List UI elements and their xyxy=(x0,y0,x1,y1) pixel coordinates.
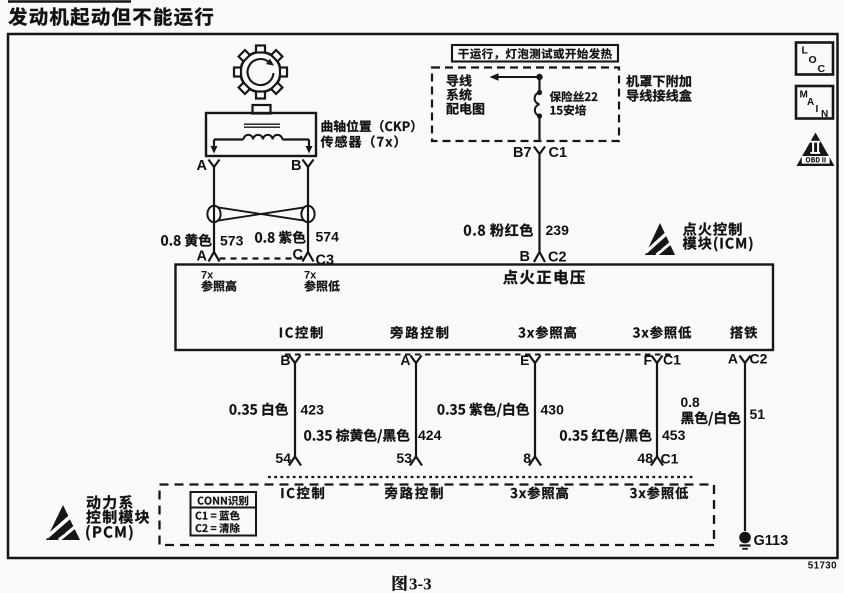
svg-text:574: 574 xyxy=(316,229,340,245)
svg-text:423: 423 xyxy=(301,402,325,418)
svg-text:B: B xyxy=(280,352,290,368)
svg-text:I: I xyxy=(816,104,819,115)
svg-text:C: C xyxy=(818,63,826,75)
svg-text:N: N xyxy=(821,109,828,120)
svg-text:A: A xyxy=(197,158,208,174)
svg-text:A: A xyxy=(400,352,410,368)
svg-text:A: A xyxy=(807,97,814,108)
svg-text:F: F xyxy=(643,352,652,368)
svg-text:C3: C3 xyxy=(316,253,335,269)
svg-text:O: O xyxy=(809,54,817,66)
svg-text:7x: 7x xyxy=(304,270,317,282)
svg-text:B7: B7 xyxy=(513,145,532,161)
svg-text:C1: C1 xyxy=(663,352,681,368)
svg-text:B: B xyxy=(291,158,301,174)
svg-text:3-3: 3-3 xyxy=(409,575,432,593)
svg-text:C1: C1 xyxy=(661,451,679,467)
svg-text:453: 453 xyxy=(662,427,686,443)
svg-text:C2: C2 xyxy=(548,250,567,266)
svg-text:C1: C1 xyxy=(549,145,568,161)
svg-text:573: 573 xyxy=(220,233,244,249)
svg-text:A: A xyxy=(197,249,208,265)
svg-text:53: 53 xyxy=(396,450,412,466)
svg-text:51730: 51730 xyxy=(808,561,837,572)
svg-text:A: A xyxy=(728,351,738,367)
svg-text:B: B xyxy=(520,249,530,265)
svg-text:L: L xyxy=(802,45,809,57)
svg-text:424: 424 xyxy=(418,427,442,443)
svg-text:48: 48 xyxy=(637,450,653,466)
svg-text:54: 54 xyxy=(275,450,291,466)
svg-text:G113: G113 xyxy=(754,533,789,549)
svg-text:239: 239 xyxy=(546,222,570,238)
svg-text:7x: 7x xyxy=(201,270,214,282)
svg-text:E: E xyxy=(520,352,529,368)
svg-text:430: 430 xyxy=(541,402,565,418)
svg-text:8: 8 xyxy=(523,450,531,466)
svg-text:0.8: 0.8 xyxy=(681,395,701,410)
svg-text:51: 51 xyxy=(750,406,766,422)
svg-text:C2: C2 xyxy=(750,351,768,367)
